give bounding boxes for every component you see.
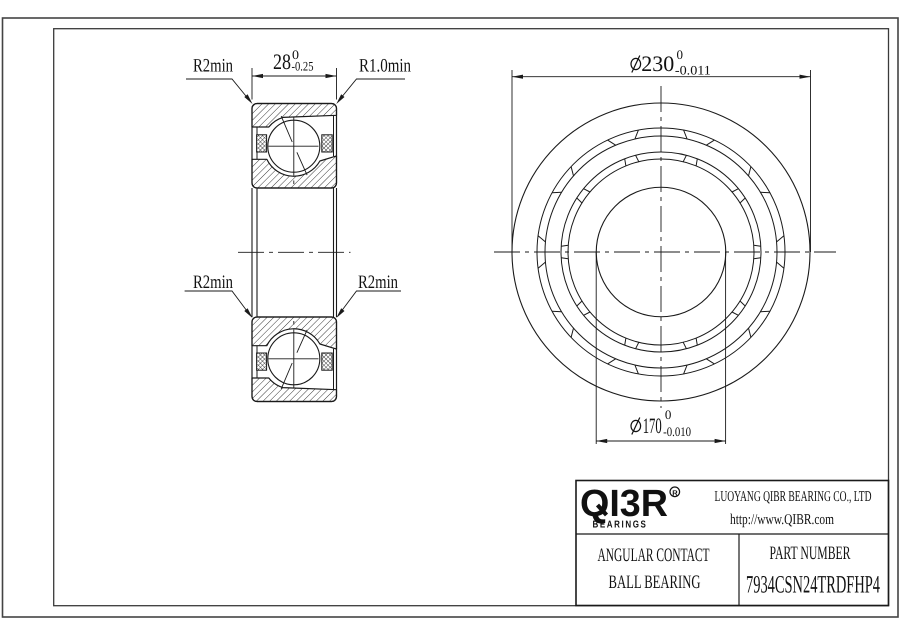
svg-text:R2min: R2min <box>193 56 233 77</box>
svg-text:0: 0 <box>677 47 684 62</box>
svg-text:0: 0 <box>665 407 672 422</box>
svg-text:BEARINGS: BEARINGS <box>593 520 648 531</box>
svg-text:ANGULAR CONTACT: ANGULAR CONTACT <box>598 545 710 566</box>
svg-text:R1.0min: R1.0min <box>359 56 411 77</box>
svg-text:230: 230 <box>641 51 674 76</box>
svg-text:LUOYANG QIBR BEARING CO., LTD: LUOYANG QIBR BEARING CO., LTD <box>715 489 872 505</box>
svg-text:BALL BEARING: BALL BEARING <box>609 572 701 593</box>
svg-text:170: 170 <box>643 413 662 438</box>
svg-text:R2min: R2min <box>358 272 398 293</box>
svg-text:-0.25: -0.25 <box>292 59 314 74</box>
svg-text:PART NUMBER: PART NUMBER <box>770 543 851 564</box>
svg-text:http://www.QIBR.com: http://www.QIBR.com <box>730 512 834 528</box>
svg-text:-0.010: -0.010 <box>663 424 691 439</box>
svg-text:28: 28 <box>273 49 291 74</box>
svg-text:R2min: R2min <box>193 272 233 293</box>
svg-text:-0.011: -0.011 <box>675 63 711 78</box>
svg-text:R: R <box>672 489 678 498</box>
svg-text:7934CSN24TRDFHP4: 7934CSN24TRDFHP4 <box>746 572 880 599</box>
